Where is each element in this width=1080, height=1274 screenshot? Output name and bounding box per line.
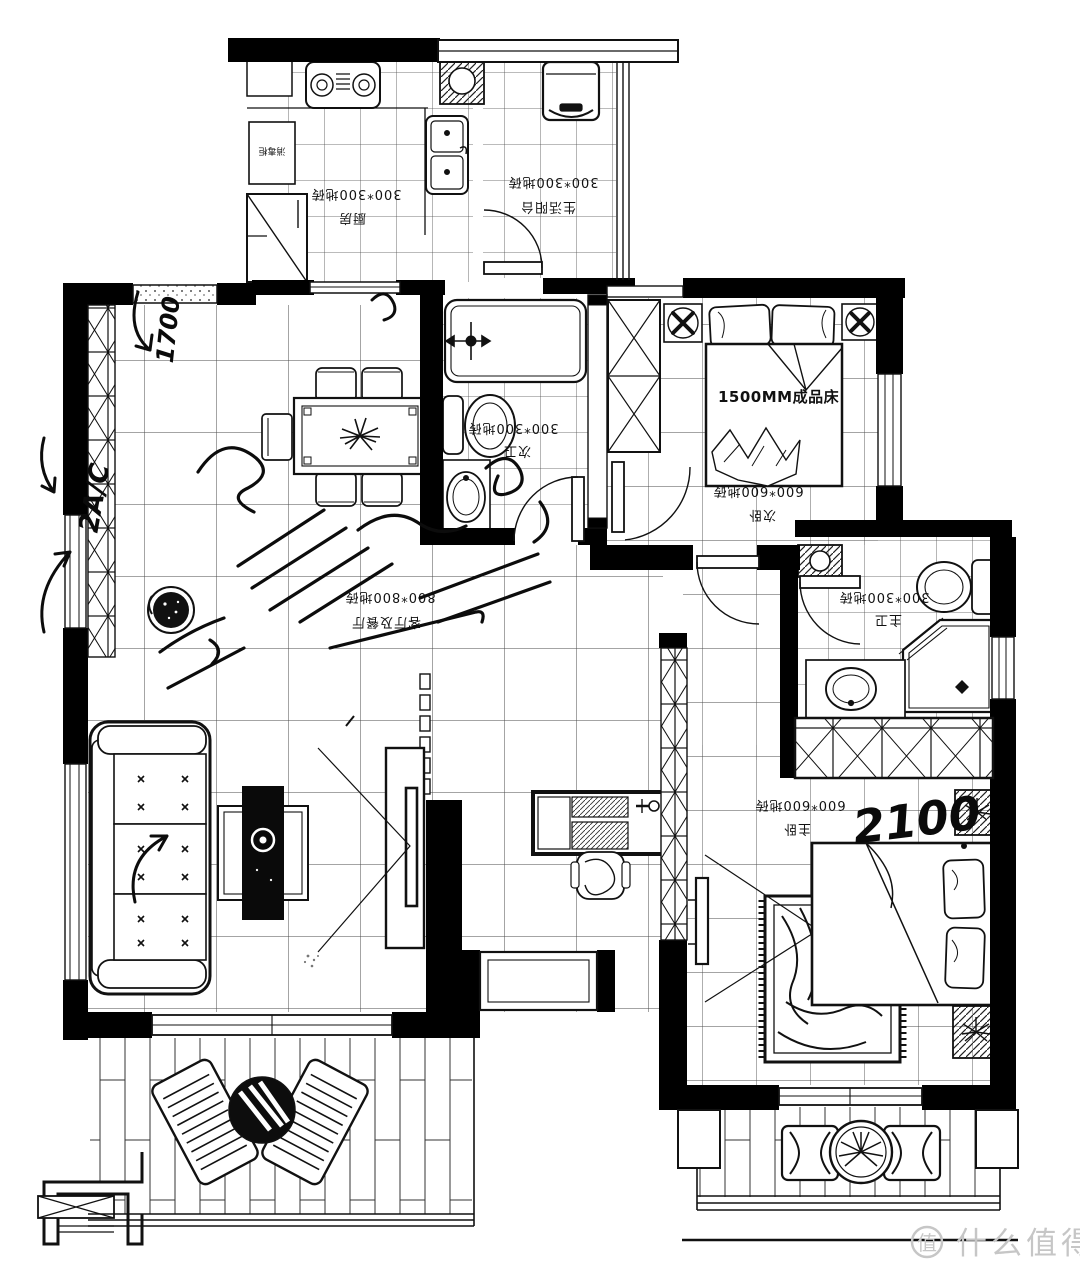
master-right-wall bbox=[990, 729, 1016, 1091]
kitchen-name-label: 厨房 bbox=[338, 210, 366, 226]
floorplan-canvas: 300*300地砖 厨房 300*300地砖 生活阳台 300*300地砖 次卫… bbox=[0, 0, 1080, 1274]
master-corridor-floor bbox=[683, 545, 795, 760]
bathtub bbox=[445, 300, 586, 382]
nightstand-right bbox=[842, 304, 878, 340]
kitchen-sliding-door bbox=[310, 282, 400, 293]
watermark-text: 什么值得买 bbox=[956, 1226, 1080, 1262]
desk-chair bbox=[571, 852, 630, 899]
washing-machine bbox=[543, 62, 599, 120]
kitchen-tile-label: 300*300地砖 bbox=[310, 186, 401, 201]
dining-chair bbox=[316, 472, 356, 506]
bay-window bbox=[480, 952, 597, 1010]
dining-chair bbox=[362, 368, 402, 402]
second-bedroom-top-wall bbox=[683, 278, 905, 298]
service-balcony-furniture bbox=[543, 62, 599, 120]
vent-shaft bbox=[798, 545, 842, 577]
kitchen-sink bbox=[426, 116, 468, 194]
left-window-2 bbox=[65, 764, 86, 980]
second-bath-tile-label: 300*300地砖 bbox=[467, 420, 558, 435]
living-balcony-sliding-door bbox=[152, 1015, 392, 1035]
floor-plant-pot bbox=[148, 587, 194, 633]
kitchen-vent-shaft bbox=[440, 58, 484, 104]
dining-table bbox=[294, 398, 426, 474]
living-balcony-wall bbox=[88, 1012, 152, 1038]
kitchen-corner-counter bbox=[247, 60, 292, 96]
master-bedroom-name-label: 主卧 bbox=[783, 821, 811, 836]
master-bedroom-tile-label: 600*600地砖 bbox=[754, 797, 845, 812]
balcony-round-table bbox=[229, 1077, 295, 1143]
master-bath-window bbox=[992, 637, 1014, 699]
master-balcony-furniture bbox=[782, 1121, 940, 1183]
fridge bbox=[247, 194, 307, 282]
side-seat bbox=[262, 414, 292, 460]
master-bath-name-label: 主卫 bbox=[874, 612, 902, 627]
bed-master bbox=[812, 843, 996, 1005]
master-closet bbox=[795, 718, 993, 778]
wash-basin bbox=[806, 660, 905, 718]
floorplan-drawing: 300*300地砖 厨房 300*300地砖 生活阳台 300*300地砖 次卫… bbox=[0, 0, 1080, 1274]
sterilizer-cabinet-label: 消毒柜 bbox=[258, 145, 285, 157]
coffee-table bbox=[218, 786, 308, 920]
service-balcony-tile-label: 300*300地砖 bbox=[507, 174, 598, 189]
desk bbox=[533, 792, 663, 854]
service-balcony-top-window bbox=[438, 40, 678, 62]
kitchen-top-wall bbox=[228, 38, 440, 62]
watermark: 值 什么值得买 bbox=[912, 1226, 1080, 1262]
second-bath-left-wall bbox=[420, 280, 443, 545]
second-bedroom-name-label: 次卧 bbox=[748, 507, 776, 523]
bed-size-label: 1500MM成品床 bbox=[718, 388, 840, 406]
second-bedroom-window bbox=[878, 374, 901, 486]
corridor-cabinet bbox=[661, 648, 687, 940]
sofa bbox=[90, 722, 210, 994]
gas-stove bbox=[306, 62, 380, 108]
master-bath-tile-label: 300*300地砖 bbox=[838, 589, 929, 604]
master-balcony-sliding-door bbox=[779, 1088, 922, 1105]
second-bath-name-label: 次卫 bbox=[503, 443, 531, 459]
dining-chair bbox=[316, 368, 356, 402]
tv-wall bbox=[426, 800, 462, 1014]
bed-1500 bbox=[706, 344, 842, 486]
pillows bbox=[709, 304, 835, 347]
master-bottom-wall bbox=[659, 1085, 779, 1110]
second-bedroom-tile-label: 600*600地砖 bbox=[712, 483, 803, 498]
service-balcony-name-label: 生活阳台 bbox=[520, 199, 576, 214]
hall-top-thin-wall bbox=[607, 286, 683, 297]
service-balcony-railing bbox=[617, 62, 629, 280]
master-bath-top-wall bbox=[795, 520, 1012, 537]
second-bath-right-wall bbox=[588, 295, 607, 528]
wardrobe bbox=[608, 300, 660, 452]
handwritten-dot bbox=[961, 843, 967, 849]
toilet bbox=[917, 560, 996, 614]
watermark-badge: 值 bbox=[917, 1231, 937, 1255]
dining-chair bbox=[362, 472, 402, 506]
tv-screen bbox=[406, 788, 417, 906]
tv-cabinet bbox=[386, 748, 424, 948]
balcony-table-plant bbox=[830, 1121, 892, 1183]
nightstand-left bbox=[664, 304, 702, 342]
